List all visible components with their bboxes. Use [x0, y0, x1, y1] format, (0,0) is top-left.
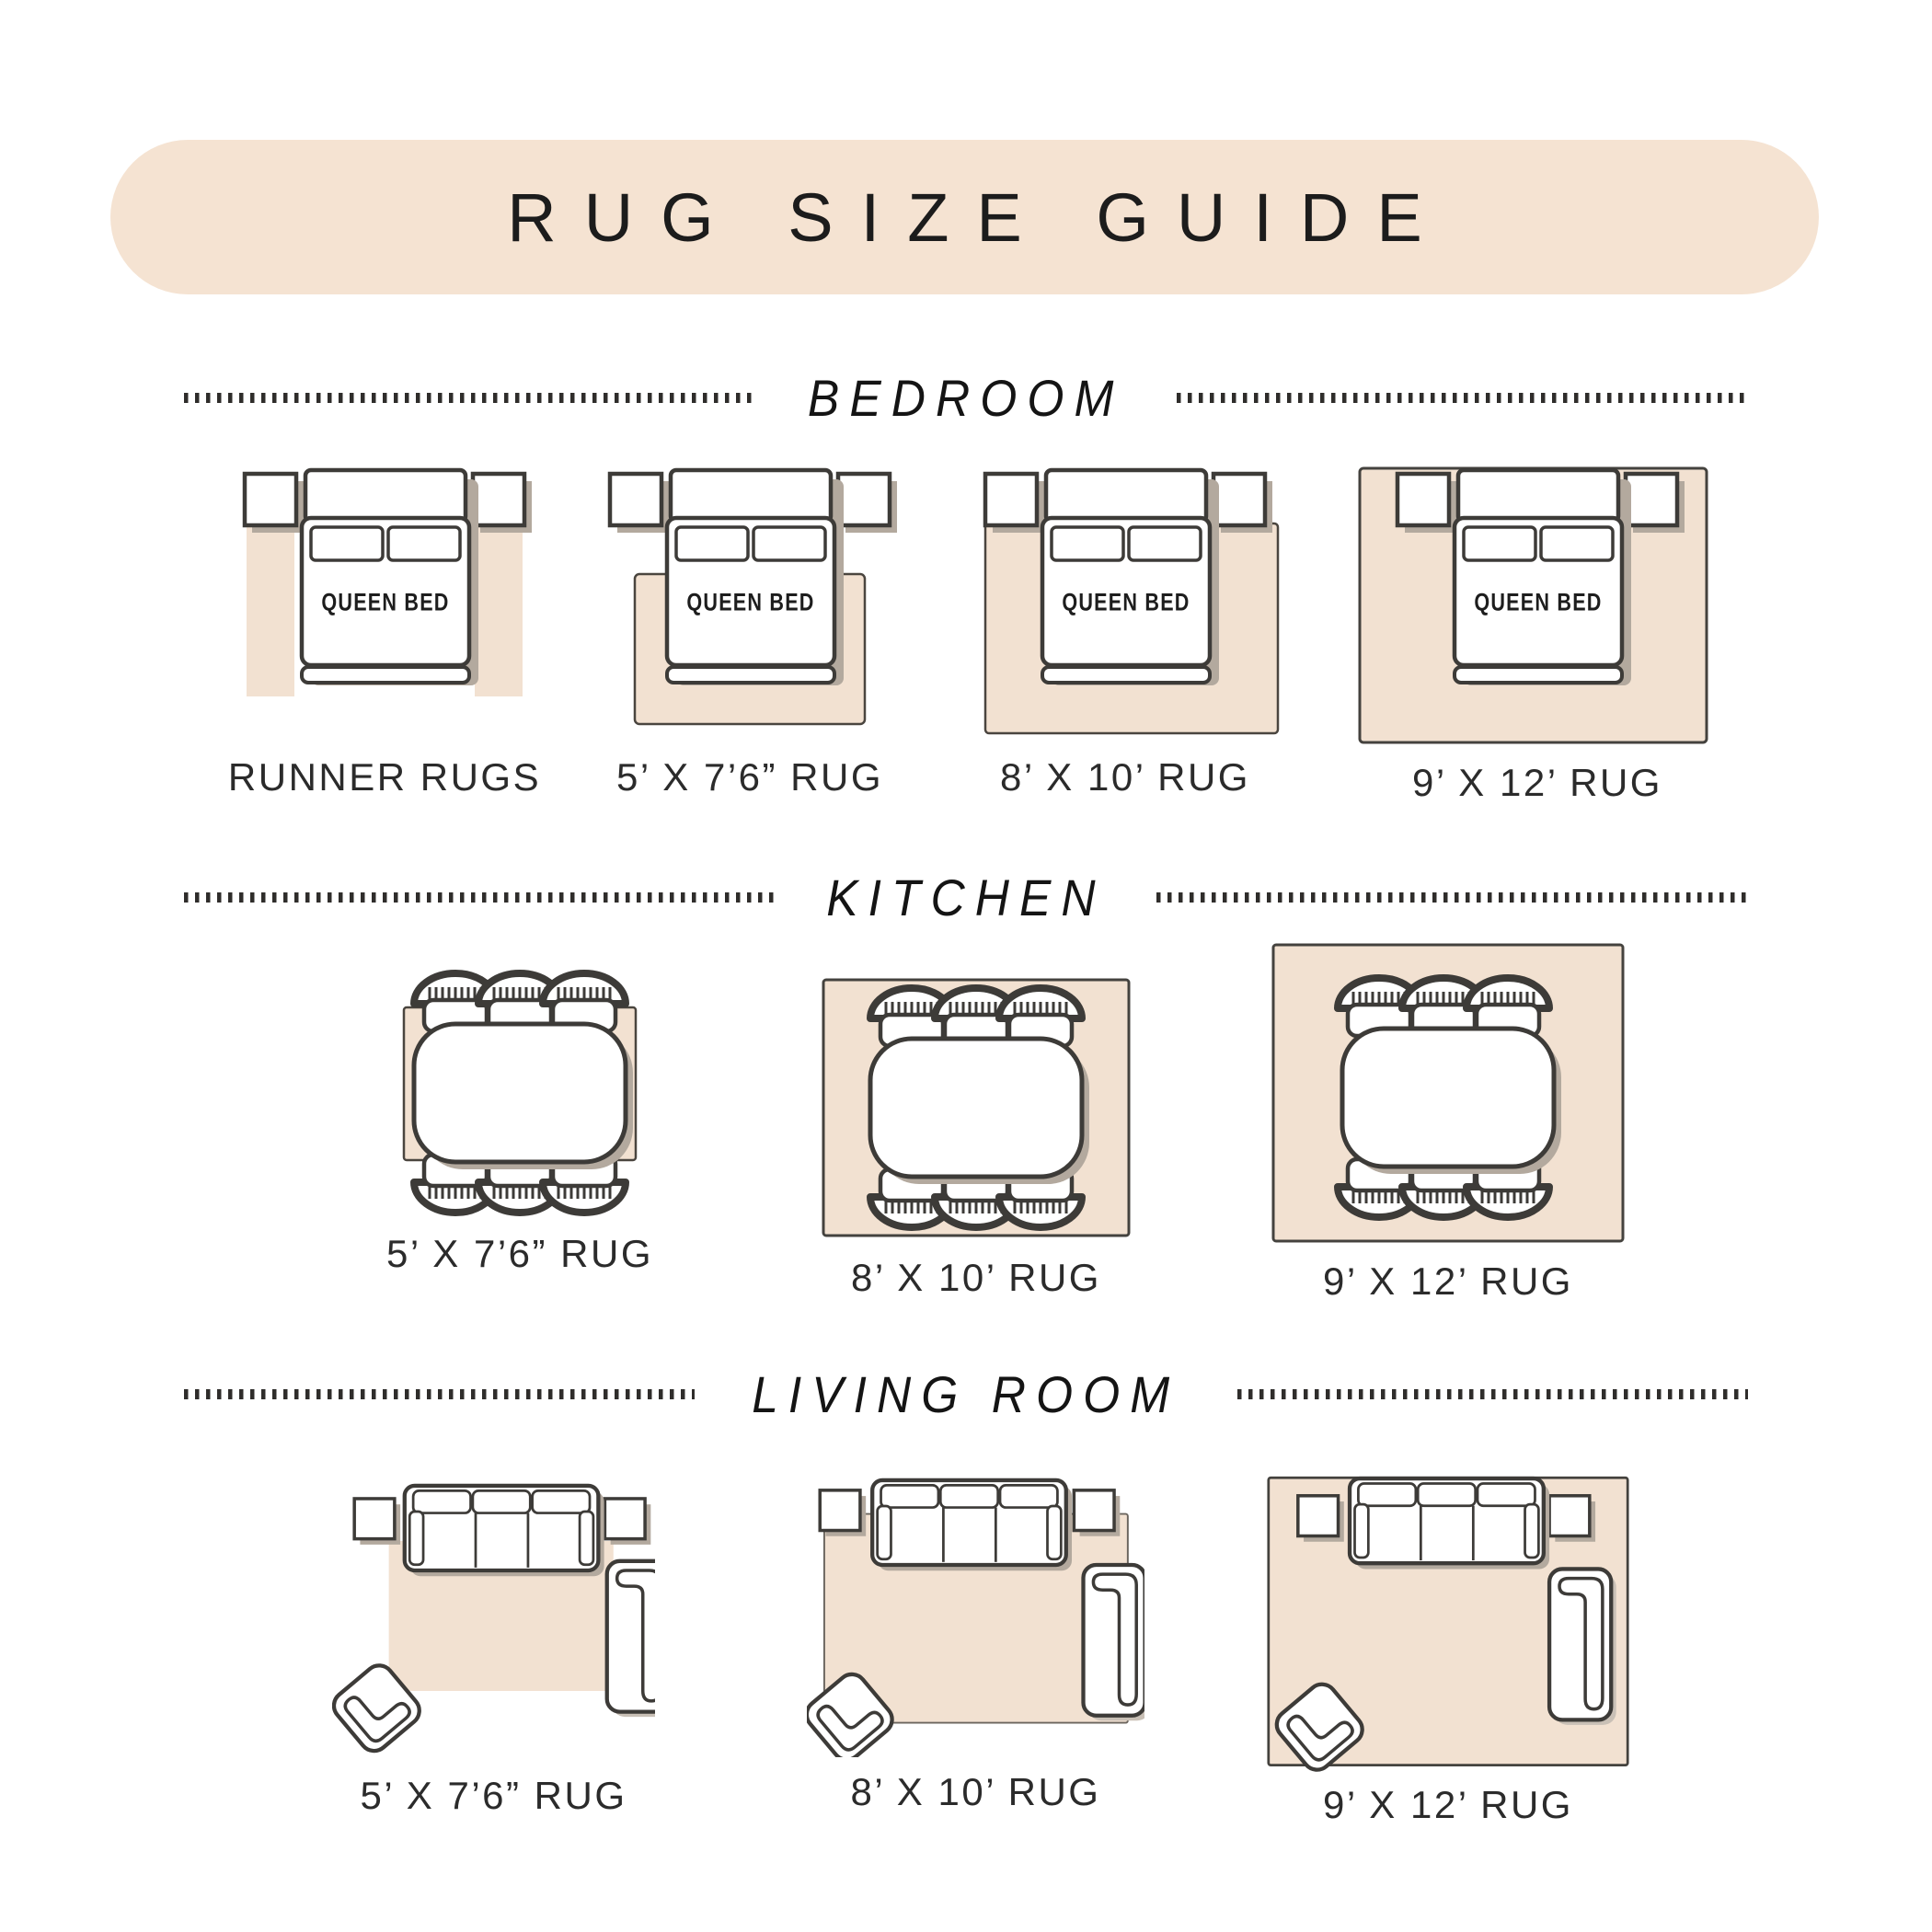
nightstand-icon	[1213, 474, 1272, 533]
section-title-living-room: LIVING ROOM	[753, 1364, 1180, 1424]
side-table-icon	[1549, 1496, 1595, 1542]
queen-bed-icon	[302, 470, 478, 685]
dotted-divider	[184, 393, 755, 403]
dotted-divider	[184, 892, 776, 903]
rug-size-label: 9’ X 12’ RUG	[1261, 1783, 1635, 1827]
living-8x10-illustration	[807, 1470, 1144, 1757]
nightstand-icon	[610, 474, 669, 533]
nightstand-icon	[473, 474, 532, 533]
rug-size-label: 5’ X 7’6” RUG	[332, 1774, 655, 1818]
rug-size-label: RUNNER RUGS	[201, 755, 569, 799]
page-title: RUG SIZE GUIDE	[479, 178, 1449, 257]
section-header-living-room: LIVING ROOM	[184, 1357, 1748, 1431]
section-title-bedroom: BEDROOM	[808, 368, 1123, 428]
diagram-living-9x12: 9’ X 12’ RUG	[1261, 1472, 1635, 1827]
section-header-bedroom: BEDROOM	[184, 361, 1748, 434]
side-table-icon	[820, 1490, 866, 1536]
diagram-bedroom-runner-rugs: QUEEN BED RUNNER RUGS	[201, 465, 569, 799]
nightstand-icon	[985, 474, 1044, 533]
rug-size-label: 8’ X 10’ RUG	[815, 1256, 1137, 1300]
nightstand-icon	[245, 474, 304, 533]
nightstand-icon	[1626, 474, 1685, 533]
kitchen-8x10-illustration	[815, 963, 1137, 1248]
sofa-icon	[1350, 1478, 1549, 1569]
rug-size-label: 8’ X 10’ RUG	[807, 1770, 1144, 1814]
diagram-kitchen-5x76: 5’ X 7’6” RUG	[368, 952, 672, 1276]
kitchen-5x76-illustration	[368, 952, 672, 1228]
queen-bed-label: QUEEN BED	[1062, 589, 1190, 617]
queen-bed-icon	[1042, 470, 1219, 685]
queen-bed-label: QUEEN BED	[321, 589, 449, 617]
armchair-icon	[607, 1561, 655, 1717]
rug-size-label: 5’ X 7’6” RUG	[566, 755, 934, 799]
rug-size-label: 5’ X 7’6” RUG	[368, 1232, 672, 1276]
diagram-bedroom-9x12: QUEEN BED 9’ X 12’ RUG	[1353, 465, 1721, 805]
nightstand-icon	[838, 474, 897, 533]
dotted-divider	[1156, 892, 1748, 903]
diagram-living-8x10: 8’ X 10’ RUG	[807, 1470, 1144, 1814]
nightstand-icon	[1397, 474, 1456, 533]
living-9x12-illustration	[1261, 1472, 1635, 1774]
dining-table-icon	[414, 1024, 633, 1169]
rug-size-label: 9’ X 12’ RUG	[1353, 761, 1721, 805]
queen-bed-label: QUEEN BED	[686, 589, 814, 617]
rug-size-label: 9’ X 12’ RUG	[1269, 1259, 1627, 1304]
diagram-kitchen-9x12: 9’ X 12’ RUG	[1269, 941, 1627, 1304]
queen-bed-icon	[667, 470, 844, 685]
living-5x76-illustration	[332, 1476, 655, 1763]
side-table-icon	[604, 1499, 650, 1545]
runner-rug-left	[247, 523, 294, 696]
diagram-living-5x76: 5’ X 7’6” RUG	[332, 1476, 655, 1818]
section-header-kitchen: KITCHEN	[184, 860, 1748, 934]
diagram-kitchen-8x10: 8’ X 10’ RUG	[815, 963, 1137, 1300]
dotted-divider	[184, 1389, 695, 1399]
diagram-bedroom-5x76: QUEEN BED 5’ X 7’6” RUG	[566, 465, 934, 799]
runner-rug-right	[475, 523, 523, 696]
queen-bed-icon	[1455, 470, 1631, 685]
side-table-icon	[1298, 1496, 1344, 1542]
side-table-icon	[354, 1499, 400, 1545]
queen-bed-label: QUEEN BED	[1474, 589, 1602, 617]
dining-table-icon	[1342, 1029, 1561, 1174]
section-title-kitchen: KITCHEN	[826, 868, 1105, 927]
dotted-divider	[1177, 393, 1748, 403]
dining-table-icon	[870, 1039, 1089, 1184]
rug-size-guide-page: { "title": "RUG SIZE GUIDE", "furniture"…	[0, 0, 1932, 1932]
title-banner: RUG SIZE GUIDE	[110, 140, 1819, 294]
armchair-icon	[1549, 1569, 1616, 1724]
sofa-icon	[872, 1480, 1072, 1570]
diagram-bedroom-8x10: QUEEN BED 8’ X 10’ RUG	[941, 465, 1309, 799]
side-table-icon	[1074, 1490, 1120, 1536]
dotted-divider	[1237, 1389, 1748, 1399]
armchair-icon	[1084, 1565, 1145, 1720]
rug-size-label: 8’ X 10’ RUG	[941, 755, 1309, 799]
kitchen-9x12-illustration	[1269, 941, 1627, 1245]
sofa-icon	[405, 1486, 604, 1576]
